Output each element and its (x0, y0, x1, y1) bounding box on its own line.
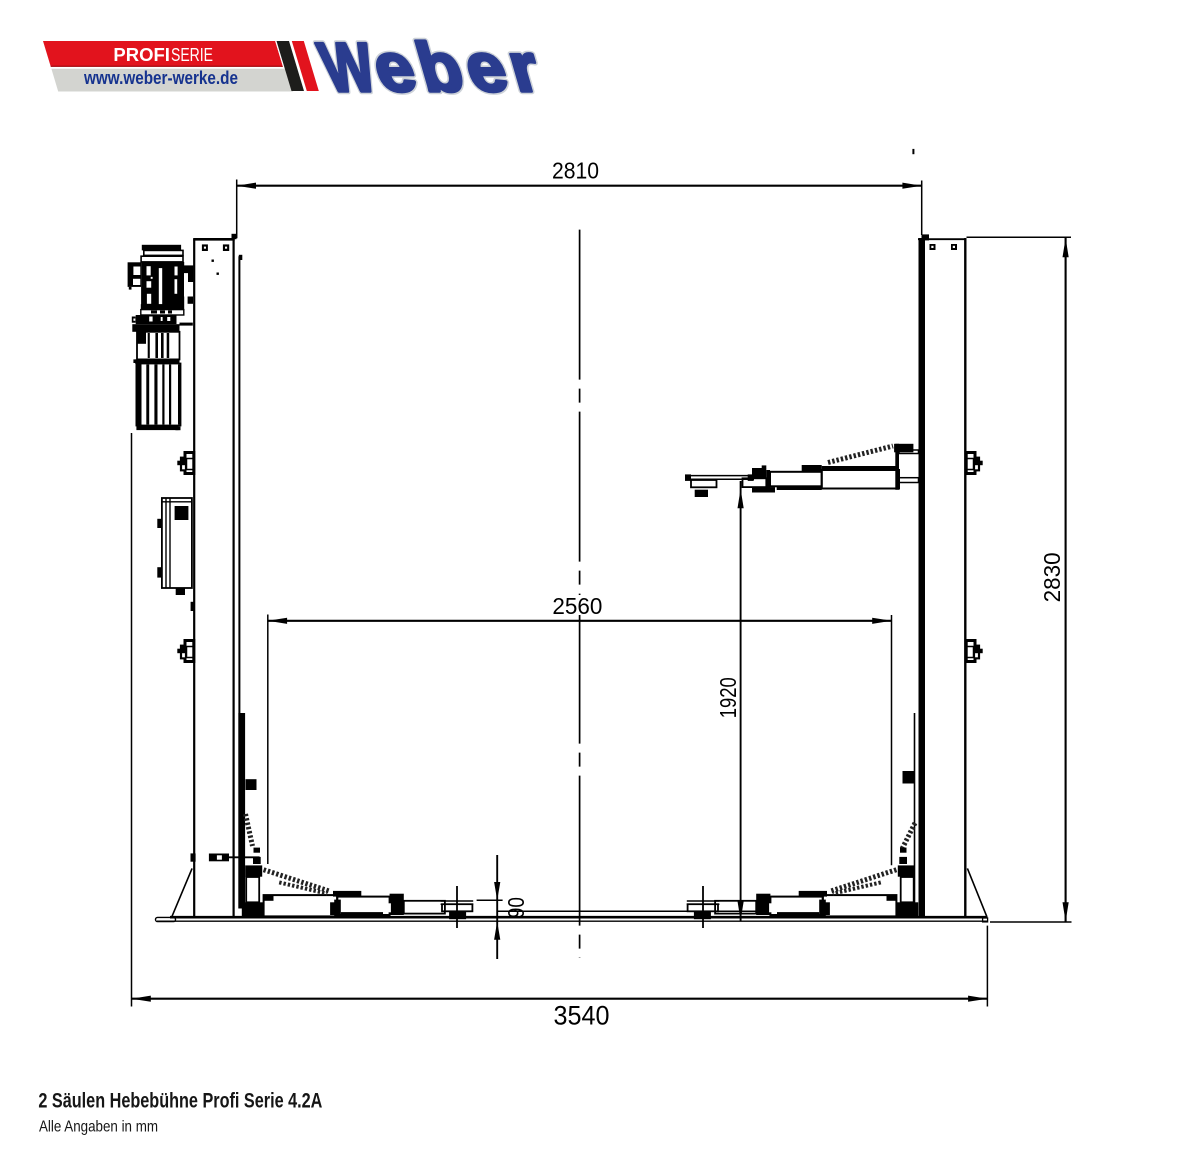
svg-text:2 Säulen Hebebühne Profi Serie: 2 Säulen Hebebühne Profi Serie 4.2A (38, 1089, 322, 1113)
svg-text:SERIE: SERIE (171, 45, 213, 65)
svg-text:2830: 2830 (1039, 552, 1065, 602)
svg-text:eber: eber (364, 28, 554, 105)
svg-text:PROFI: PROFI (113, 45, 169, 65)
svg-text:90: 90 (503, 897, 529, 918)
svg-text:1920: 1920 (715, 677, 741, 718)
svg-text:3540: 3540 (554, 1001, 610, 1031)
svg-text:www.weber-werke.de: www.weber-werke.de (83, 67, 238, 88)
svg-text:2810: 2810 (552, 158, 599, 184)
svg-text:2560: 2560 (552, 593, 602, 619)
svg-text:Alle Angaben in mm: Alle Angaben in mm (39, 1119, 158, 1136)
